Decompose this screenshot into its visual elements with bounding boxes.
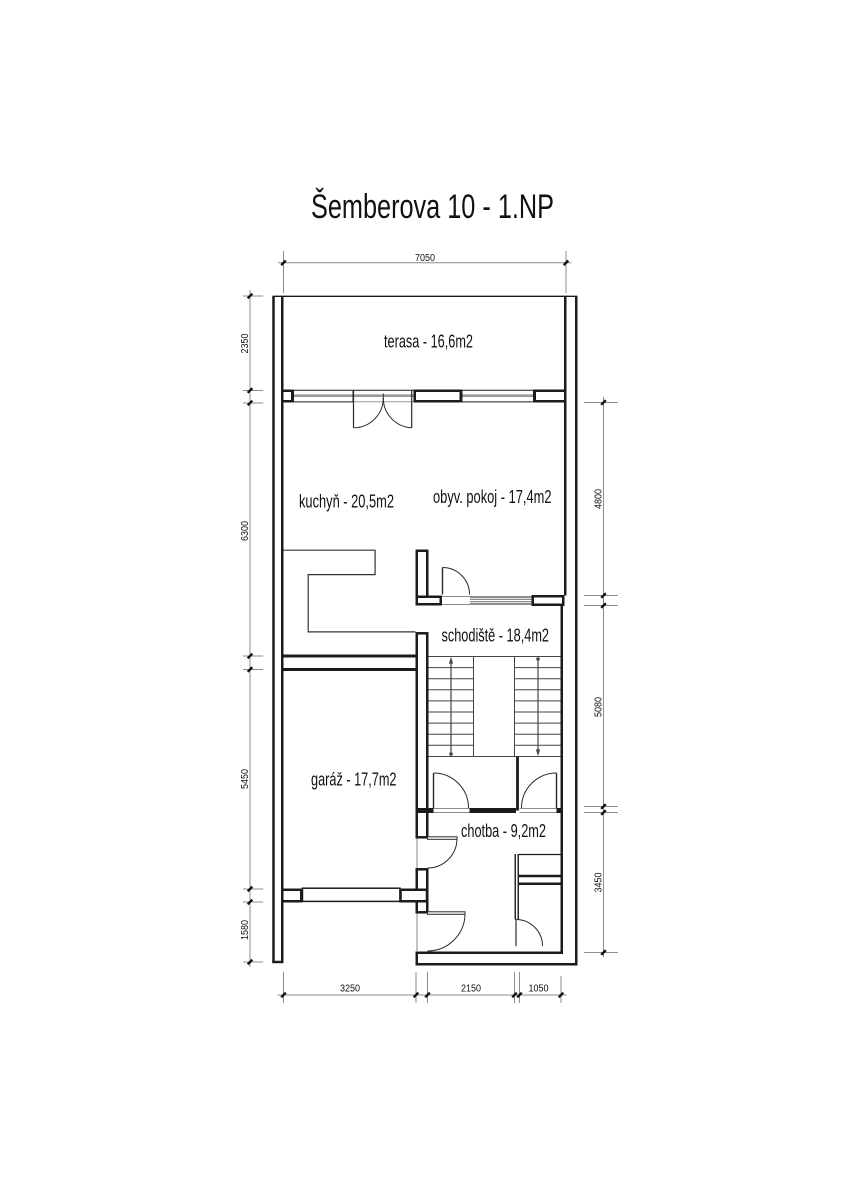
svg-text:Šemberova 10 - 1.NP: Šemberova 10 - 1.NP: [311, 188, 554, 226]
svg-text:terasa - 16,6m2: terasa - 16,6m2: [384, 332, 473, 352]
svg-text:1580: 1580: [240, 920, 251, 940]
svg-text:2150: 2150: [461, 984, 481, 995]
svg-text:2350: 2350: [240, 333, 251, 353]
svg-text:3250: 3250: [340, 984, 360, 995]
svg-text:kuchyň - 20,5m2: kuchyň - 20,5m2: [299, 492, 394, 512]
svg-text:3450: 3450: [594, 872, 605, 892]
svg-text:garáž - 17,7m2: garáž - 17,7m2: [311, 770, 397, 790]
svg-text:schodiště - 18,4m2: schodiště - 18,4m2: [442, 626, 550, 646]
svg-text:7050: 7050: [415, 253, 435, 264]
svg-text:obyv. pokoj - 17,4m2: obyv. pokoj - 17,4m2: [433, 487, 552, 507]
svg-text:1050: 1050: [529, 984, 549, 995]
svg-text:4800: 4800: [594, 489, 605, 509]
svg-text:5450: 5450: [240, 769, 251, 789]
svg-text:5080: 5080: [594, 697, 605, 717]
svg-text:chotba - 9,2m2: chotba - 9,2m2: [461, 821, 546, 841]
svg-text:6300: 6300: [240, 521, 251, 541]
